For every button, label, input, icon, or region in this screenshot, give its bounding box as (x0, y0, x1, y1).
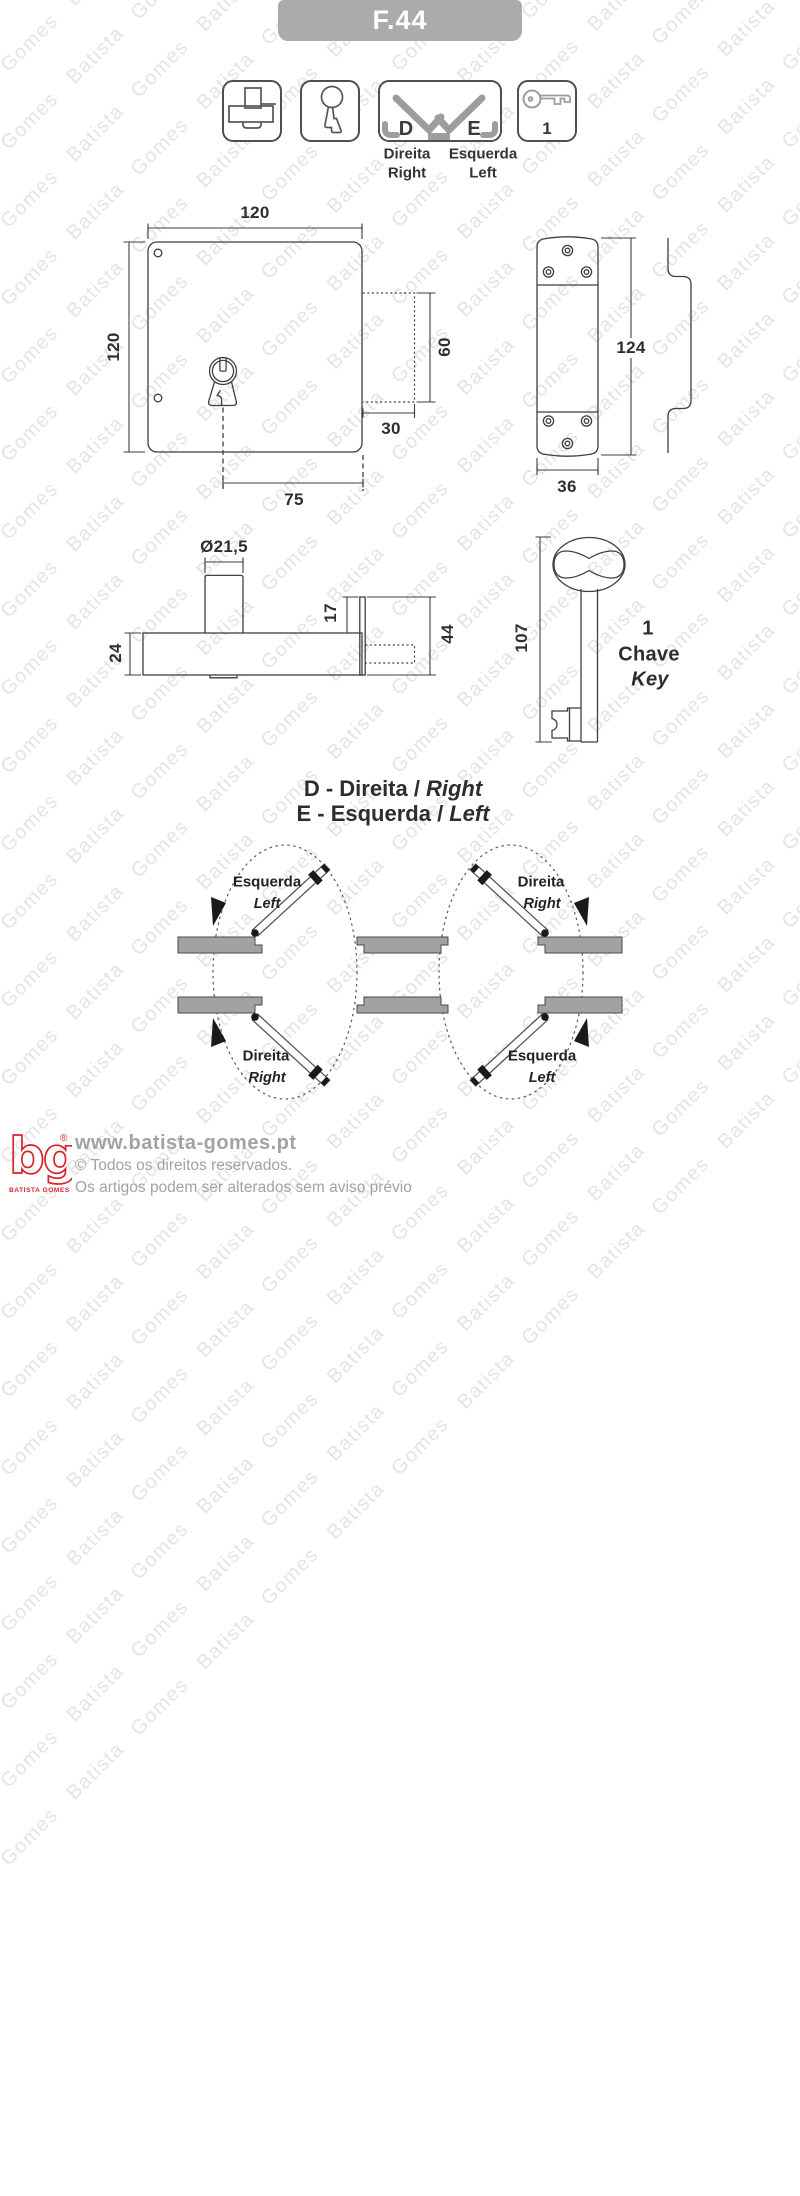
handing-icon: D E (380, 82, 500, 140)
icon-key: 1 (517, 80, 577, 142)
dim-keyhole-offset: 75 (284, 490, 304, 510)
diagram-bottom-left-en: Right (248, 1070, 285, 1086)
dim-plate-above: 17 (321, 603, 341, 623)
dim-bolt-height: 60 (435, 337, 455, 357)
key-drawing (536, 537, 626, 742)
handing-d-letter: D (399, 118, 413, 140)
key-label-en: Key (631, 669, 669, 692)
diagram-top-right-pt: Direita (518, 874, 565, 891)
front-view-drawing (124, 224, 436, 492)
handing-right-label: Right (388, 165, 426, 182)
handing-title-d-en: Right (426, 776, 482, 801)
key-label-pt: Chave (618, 644, 680, 667)
dim-strike-height: 124 (613, 338, 648, 358)
diagram-bottom-right-en: Left (529, 1070, 556, 1086)
handing-title-e-en: Left (449, 801, 489, 826)
handing-title-e: E - Esquerda /Left (296, 801, 489, 827)
icon-rim-lock (222, 80, 282, 142)
diagram-top-left-pt: Esquerda (233, 874, 301, 891)
icon-handing: D E (378, 80, 502, 142)
dim-strike-width: 36 (557, 477, 577, 497)
handing-left-label: Left (469, 165, 497, 182)
handing-title-d-text: D - Direita / (304, 776, 420, 801)
product-code: F.44 (372, 5, 427, 36)
key-count: 1 (642, 618, 653, 641)
dim-body-depth: 24 (106, 643, 126, 663)
handing-title-e-text: E - Esquerda / (296, 801, 443, 826)
website-link[interactable]: www.batista-gomes.pt (75, 1132, 297, 1155)
brand-logo: bg ® BATISTA GOMES (8, 1128, 72, 1201)
logo-registered: ® (60, 1133, 68, 1144)
dim-cylinder-diameter: Ø21,5 (200, 537, 248, 557)
key-icon: 1 (519, 82, 575, 140)
bg-logo-icon: bg ® BATISTA GOMES (8, 1128, 72, 1196)
icon-keyhole (300, 80, 360, 142)
notice-text: Os artigos podem ser alterados sem aviso… (75, 1179, 412, 1197)
diagram-bottom-left-pt: Direita (243, 1048, 290, 1065)
dim-front-height: 120 (104, 332, 124, 361)
header-badge: F.44 (278, 0, 522, 41)
handing-direita-label: Direita (384, 146, 431, 163)
rim-lock-icon (224, 82, 280, 140)
keyhole-icon (302, 82, 358, 140)
diagram-bottom-right-pt: Esquerda (508, 1048, 576, 1065)
handing-title-d: D - Direita /Right (304, 776, 482, 802)
side-view-drawing (125, 558, 437, 678)
handing-esquerda-label: Esquerda (449, 146, 517, 163)
diagram-top-left-en: Left (254, 896, 281, 912)
handing-e-letter: E (467, 118, 480, 140)
copyright-text: © Todos os direitos reservados. (75, 1157, 292, 1175)
dim-bolt-depth: 30 (381, 419, 401, 439)
logo-caption: BATISTA GOMES (9, 1187, 70, 1194)
diagram-top-right-en: Right (523, 896, 560, 912)
dim-front-width: 120 (240, 203, 269, 223)
key-count-label: 1 (542, 119, 551, 138)
dim-plate-total: 44 (438, 624, 458, 644)
dim-key-length: 107 (512, 623, 532, 652)
